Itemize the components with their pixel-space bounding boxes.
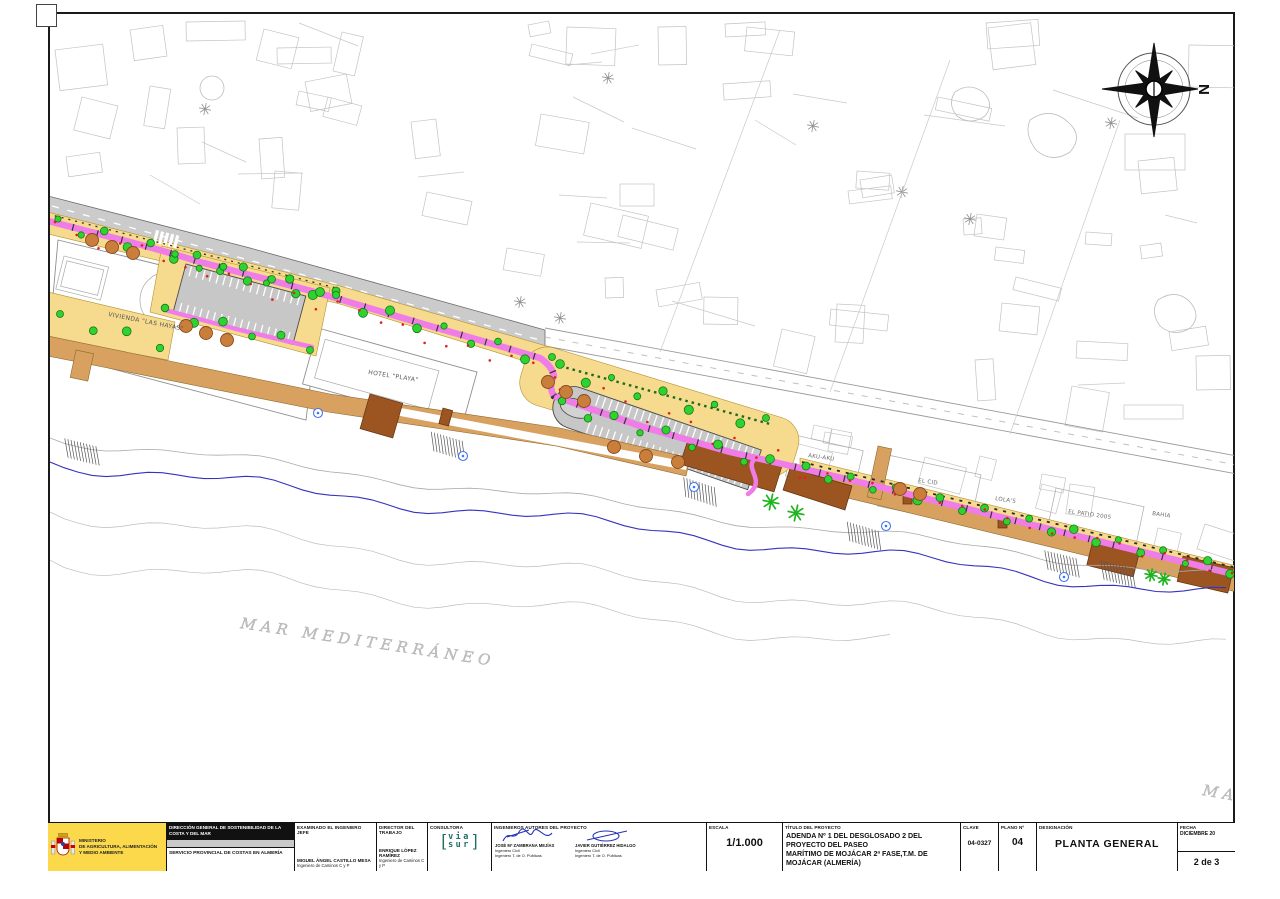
parcel-outline: [725, 22, 766, 37]
survey-marker-dot: [1063, 576, 1066, 579]
signature-1-icon: [499, 828, 555, 843]
hatch-line: [700, 484, 713, 504]
titulo-cell: TÍTULO DEL PROYECTO ADENDA Nº 1 DEL DESG…: [783, 823, 961, 871]
hatch-line: [429, 433, 442, 453]
red-dot: [1118, 542, 1121, 545]
tree-icon: [196, 265, 202, 271]
bracket-right: ]: [473, 834, 478, 848]
red-dot: [1051, 532, 1054, 535]
red-dot: [54, 221, 57, 224]
parcel-outline: [823, 432, 852, 448]
parcel-outline: [566, 27, 616, 66]
beach-stairs: [842, 522, 885, 550]
title-block: MINISTERIO DE AGRICULTURA, ALIMENTACIÓN …: [48, 822, 1235, 871]
red-dot: [1073, 536, 1076, 539]
parcel-line: [299, 23, 358, 46]
red-dot: [690, 421, 693, 424]
parcel-outline: [259, 137, 285, 179]
project-title: ADENDA Nº 1 DEL DESGLOSADO 2 DEL PROYECT…: [783, 830, 960, 871]
red-dot: [315, 308, 318, 311]
parcel-outline: [74, 97, 118, 139]
escala-cell: ESCALA 1/1.000: [707, 823, 783, 871]
parcel-line: [150, 175, 200, 204]
hatch-line: [858, 526, 871, 546]
parcel-outline: [620, 184, 654, 206]
survey-marker-dot: [693, 486, 696, 489]
consultora-cell: CONSULTORA [ via sur ]: [428, 823, 492, 871]
tree-icon: [711, 401, 718, 408]
tree-icon: [193, 251, 201, 259]
ministry-cell: MINISTERIO DE AGRICULTURA, ALIMENTACIÓN …: [48, 823, 167, 871]
signature-2-icon: [579, 828, 635, 843]
tree-canopy-icon: [127, 247, 140, 260]
red-dot: [445, 345, 448, 348]
red-dot: [249, 283, 252, 286]
parcel-outline: [177, 127, 205, 164]
servicio-provincial-label: SERVICIO PROVINCIAL DE COSTAS EN ALMERÍA: [167, 848, 294, 859]
red-dot: [510, 355, 513, 358]
escala-label: ESCALA: [707, 823, 782, 830]
tree-icon: [277, 331, 285, 339]
hatch-line: [439, 435, 452, 455]
tree-icon: [1204, 557, 1212, 565]
hatch-line: [706, 486, 719, 506]
engineer-2-block: JAVIER GUTIÉRREZ HIDALGO Ingeniero Civil…: [575, 830, 649, 858]
hatch-line: [852, 524, 865, 544]
tree-canopy-icon: [221, 334, 234, 347]
examinado-cell: EXAMINADO EL INGENIERO JEFE MIGUEL ÁNGEL…: [295, 823, 377, 871]
parcel-outline: [1039, 474, 1065, 493]
examinado-person: MIGUEL ÁNGEL CASTILLO MESA Ingeniero de …: [295, 858, 376, 871]
parcel-outline: [975, 456, 997, 480]
parcel-outline: [1138, 157, 1177, 194]
tree-icon: [549, 354, 556, 361]
red-dot: [602, 387, 605, 390]
tree-icon: [239, 263, 247, 271]
parcel-outline: [811, 425, 832, 442]
red-dot: [1163, 552, 1166, 555]
director-cell: DIRECTOR DEL TRABAJO ENRIQUE LÓPEZ RAMÍR…: [377, 823, 428, 871]
tree-icon: [584, 415, 592, 423]
red-dot: [646, 421, 649, 424]
parcel-line: [632, 128, 696, 149]
hatch-line: [864, 528, 877, 548]
red-dot: [467, 344, 470, 347]
designacion-value: PLANTA GENERAL: [1037, 838, 1177, 850]
existing-tree-icon: [807, 120, 819, 132]
beach-stairs: [678, 477, 722, 506]
parcel-line: [755, 120, 796, 145]
fecha-value: DICIEMBRE 20: [1178, 830, 1235, 837]
tree-icon: [802, 462, 810, 470]
parcel-outline: [1169, 326, 1209, 351]
garden-outline: [1028, 113, 1077, 157]
consultora-label: CONSULTORA: [428, 823, 491, 830]
hatch-line: [870, 530, 883, 550]
escala-value: 1/1.000: [707, 837, 782, 849]
tree-icon: [1137, 549, 1145, 557]
parcel-outline: [605, 277, 624, 298]
tree-canopy-icon: [560, 386, 573, 399]
red-dot: [1096, 537, 1099, 540]
red-dot: [75, 234, 78, 237]
tree-icon: [57, 311, 64, 318]
survey-marker-dot: [885, 525, 888, 528]
red-dot: [162, 260, 165, 263]
tree-icon: [495, 338, 502, 345]
tree-icon: [1226, 570, 1235, 579]
designacion-label: DESIGNACIÓN: [1037, 823, 1177, 830]
hatch-line: [442, 436, 455, 456]
parcel-outline: [658, 27, 687, 65]
tree-icon: [307, 347, 314, 354]
parcel-outline: [1188, 45, 1248, 88]
tree-icon: [736, 419, 745, 428]
tree-icon: [610, 411, 618, 419]
red-dot: [423, 342, 426, 345]
hatch-line: [861, 527, 874, 547]
tree-icon: [637, 430, 643, 436]
director-person: ENRIQUE LÓPEZ RAMÍREZ Ingeniero de Camin…: [377, 848, 427, 871]
parcel-outline: [994, 247, 1024, 263]
existing-tree-icon: [1105, 117, 1117, 129]
red-dot: [849, 479, 852, 482]
parcel-line: [1165, 215, 1197, 223]
contour-line: [50, 560, 890, 641]
engineer-1-block: JOSÉ Mª ZAMBRANA MEJÍAS Ingeniero Civil …: [495, 830, 569, 858]
hatch-line: [855, 525, 868, 545]
red-dot: [206, 275, 209, 278]
red-dot: [336, 300, 339, 303]
side-street-2: [830, 60, 950, 392]
parcel-outline: [305, 74, 352, 111]
palm-tree-icon: [763, 494, 779, 510]
parcel-line: [793, 94, 847, 103]
fecha-cell: FECHA DICIEMBRE 20 2 de 3: [1178, 823, 1235, 871]
tree-canopy-icon: [894, 483, 907, 496]
tree-icon: [413, 324, 422, 333]
clave-label: CLAVE: [961, 823, 998, 830]
parcel-outline: [1196, 355, 1231, 390]
tree-icon: [249, 333, 256, 340]
red-dot: [799, 477, 802, 480]
red-dot: [1006, 517, 1009, 520]
parcel-outline: [744, 27, 794, 56]
survey-marker-dot: [462, 455, 465, 458]
red-dot: [826, 472, 829, 475]
ingenieros-cell: INGENIEROS AUTORES DEL PROYECTO JOSÉ Mª …: [492, 823, 707, 871]
red-dot: [755, 456, 758, 459]
red-dot: [380, 321, 383, 324]
red-dot: [939, 502, 942, 505]
tree-canopy-icon: [672, 456, 685, 469]
tree-icon: [1115, 537, 1121, 543]
red-dot: [293, 292, 296, 295]
hatch-line: [703, 485, 716, 505]
drawing-sheet: { "plan": { "north_label": "N", "sea_lab…: [0, 0, 1280, 899]
tree-icon: [936, 494, 944, 502]
red-dot: [141, 244, 144, 247]
survey-marker-dot: [317, 412, 320, 415]
existing-tree-icon: [199, 103, 211, 115]
tree-icon: [870, 487, 877, 494]
tree-canopy-icon: [608, 441, 621, 454]
red-dot: [228, 272, 231, 275]
beach-stairs: [60, 438, 103, 465]
hatch-line: [436, 434, 449, 454]
existing-tree-icon: [602, 72, 614, 84]
tree-icon: [1182, 560, 1188, 566]
parcel-outline: [1076, 341, 1128, 361]
spain-coat-of-arms-icon: [50, 832, 76, 862]
plano-value: 04: [999, 837, 1036, 848]
direccion-general-cell: DIRECCIÓN GENERAL DE SOSTENIBILIDAD DE L…: [167, 823, 295, 871]
parcel-outline: [186, 21, 245, 41]
tree-icon: [441, 323, 447, 329]
parcel-line: [577, 242, 630, 243]
sheet-number: 2 de 3: [1178, 852, 1235, 871]
red-dot: [1231, 572, 1234, 575]
tree-icon: [156, 344, 163, 351]
tree-icon: [122, 327, 131, 336]
sea-label-partial: MA: [1200, 781, 1240, 805]
tree-icon: [292, 290, 300, 298]
parcel-outline: [66, 152, 102, 177]
sea-label: MAR MEDITERRÁNEO: [238, 614, 496, 670]
parcel-outline: [704, 297, 738, 325]
hatch-line: [842, 522, 855, 542]
parcel-outline: [144, 86, 171, 129]
garden-outline: [1154, 294, 1196, 332]
existing-tree-icon: [514, 296, 526, 308]
parcel-outline: [272, 171, 302, 210]
compass-rose-icon: [1102, 43, 1198, 137]
red-dot: [119, 242, 122, 245]
signatures-row: JOSÉ Mª ZAMBRANA MEJÍAS Ingeniero Civil …: [492, 830, 706, 858]
parcel-outline: [1013, 277, 1062, 301]
red-dot: [1186, 559, 1189, 562]
tree-icon: [689, 444, 696, 451]
side-street-1: [660, 30, 780, 352]
parcel-outline: [55, 44, 108, 91]
designacion-cell: DESIGNACIÓN PLANTA GENERAL: [1037, 823, 1178, 871]
parcel-outline: [130, 25, 167, 60]
parcel-outline: [1085, 232, 1112, 246]
tree-icon: [89, 327, 97, 335]
tree-icon: [741, 458, 748, 465]
parcel-outline: [1125, 134, 1185, 170]
tree-icon: [219, 317, 228, 326]
parcel-outline: [986, 19, 1040, 49]
parcel-outline: [422, 192, 472, 225]
viasur-logo: [ via sur ]: [428, 833, 491, 851]
parcel-outline: [1124, 405, 1183, 419]
corner-registration-box: [36, 4, 57, 27]
tree-icon: [1092, 538, 1101, 547]
red-dot: [402, 323, 405, 326]
side-street-3: [1010, 120, 1120, 434]
hatch-line: [432, 434, 445, 454]
divider: [167, 839, 294, 848]
tree-icon: [78, 232, 84, 238]
red-dot: [733, 437, 736, 440]
ministry-name: MINISTERIO DE AGRICULTURA, ALIMENTACIÓN …: [79, 838, 157, 857]
parcel-outline: [975, 359, 996, 401]
tree-icon: [268, 276, 276, 284]
hatch-line: [445, 437, 458, 457]
tree-icon: [220, 263, 227, 270]
elpatio-label: EL PATIO 2005: [1068, 509, 1112, 521]
bracket-left: [: [441, 834, 446, 848]
tree-icon: [172, 251, 179, 258]
tree-icon: [662, 426, 670, 434]
red-dot: [1208, 569, 1211, 572]
bahia-label: BAHÍA: [1152, 510, 1171, 520]
hatch-line: [709, 487, 722, 507]
parcel-outline: [963, 218, 982, 235]
tree-icon: [1070, 525, 1079, 534]
tree-icon: [1026, 515, 1033, 522]
director-label: DIRECTOR DEL TRABAJO: [377, 823, 427, 835]
parcel-outline: [1140, 243, 1163, 259]
tree-icon: [332, 291, 339, 298]
red-dot: [184, 266, 187, 269]
red-dot: [984, 508, 987, 511]
tree-canopy-icon: [200, 327, 213, 340]
hatch-line: [426, 432, 439, 452]
tree-icon: [286, 275, 294, 283]
red-dot: [668, 412, 671, 415]
parcel-outline: [773, 329, 815, 374]
boardwalk-east: [798, 468, 1237, 592]
red-dot: [358, 309, 361, 312]
tree-icon: [100, 227, 108, 235]
tree-icon: [825, 476, 833, 484]
site-plan-canvas: N VIVIENDA "LAS HAYAS" HOTEL "PLAYA" AKU…: [0, 0, 1280, 899]
tree-canopy-icon: [542, 376, 555, 389]
north-label: N: [1195, 84, 1212, 95]
tree-icon: [714, 440, 723, 449]
existing-tree-icon: [554, 312, 566, 324]
tree-icon: [766, 455, 775, 464]
red-dot: [97, 247, 100, 250]
viasur-logo-bottom: sur: [448, 841, 471, 850]
parcel-line: [202, 142, 246, 162]
parcel-line: [573, 97, 624, 122]
clave-cell: CLAVE 04-0327: [961, 823, 999, 871]
tree-icon: [556, 360, 565, 369]
tree-icon: [763, 415, 770, 422]
hatch-line: [848, 524, 861, 544]
parcel-line: [559, 195, 607, 198]
tree-icon: [1047, 528, 1055, 536]
red-dot: [624, 400, 627, 403]
tree-icon: [608, 374, 614, 380]
plano-label: PLANO Nº: [999, 823, 1036, 830]
parcel-outline: [1197, 524, 1246, 562]
red-dot: [961, 505, 964, 508]
parcel-outline: [411, 119, 440, 159]
tree-icon: [659, 387, 667, 395]
red-dot: [532, 362, 535, 365]
red-dot: [871, 482, 874, 485]
examinado-label: EXAMINADO EL INGENIERO JEFE: [295, 823, 376, 835]
parcel-outline: [848, 186, 892, 204]
tree-canopy-icon: [914, 488, 927, 501]
parcel-line: [924, 115, 1005, 126]
plano-cell: PLANO Nº 04: [999, 823, 1037, 871]
hatch-line: [873, 531, 886, 551]
parcel-outline: [723, 81, 771, 100]
tree-canopy-icon: [578, 395, 591, 408]
tree-icon: [147, 239, 155, 247]
red-dot: [777, 449, 780, 452]
parcel-outline: [535, 114, 589, 154]
clave-value: 04-0327: [961, 840, 998, 847]
parcel-outline: [999, 303, 1040, 335]
tree-icon: [581, 378, 590, 387]
lolas-label: LOLA'S: [995, 496, 1017, 505]
red-dot: [554, 376, 557, 379]
tree-icon: [847, 473, 854, 480]
tree-canopy-icon: [86, 234, 99, 247]
tree-icon: [981, 504, 989, 512]
red-dot: [1141, 555, 1144, 558]
tree-canopy-icon: [640, 450, 653, 463]
tree-icon: [684, 405, 693, 414]
parcel-line: [672, 301, 755, 326]
red-dot: [1028, 527, 1031, 530]
parcel-line: [1078, 383, 1125, 385]
tree-icon: [385, 306, 394, 315]
tree-icon: [161, 304, 169, 312]
red-dot: [271, 298, 274, 301]
direccion-general-label: DIRECCIÓN GENERAL DE SOSTENIBILIDAD DE L…: [167, 823, 294, 839]
parcel-outline: [528, 21, 551, 37]
red-dot: [711, 443, 714, 446]
parcel-line: [418, 172, 464, 177]
tree-canopy-icon: [106, 241, 119, 254]
pond-outline: [200, 76, 224, 100]
parcel-outline: [503, 248, 544, 276]
red-dot: [804, 476, 807, 479]
parcel-outline: [333, 32, 363, 76]
tree-icon: [521, 355, 530, 364]
tree-icon: [959, 507, 966, 514]
fecha-top: FECHA DICIEMBRE 20: [1178, 823, 1235, 852]
tree-icon: [634, 393, 641, 400]
tree-icon: [316, 288, 325, 297]
palm-tree-icon: [788, 505, 804, 521]
parcel-outline: [277, 47, 331, 64]
red-dot: [489, 359, 492, 362]
parcel-line: [238, 173, 303, 174]
